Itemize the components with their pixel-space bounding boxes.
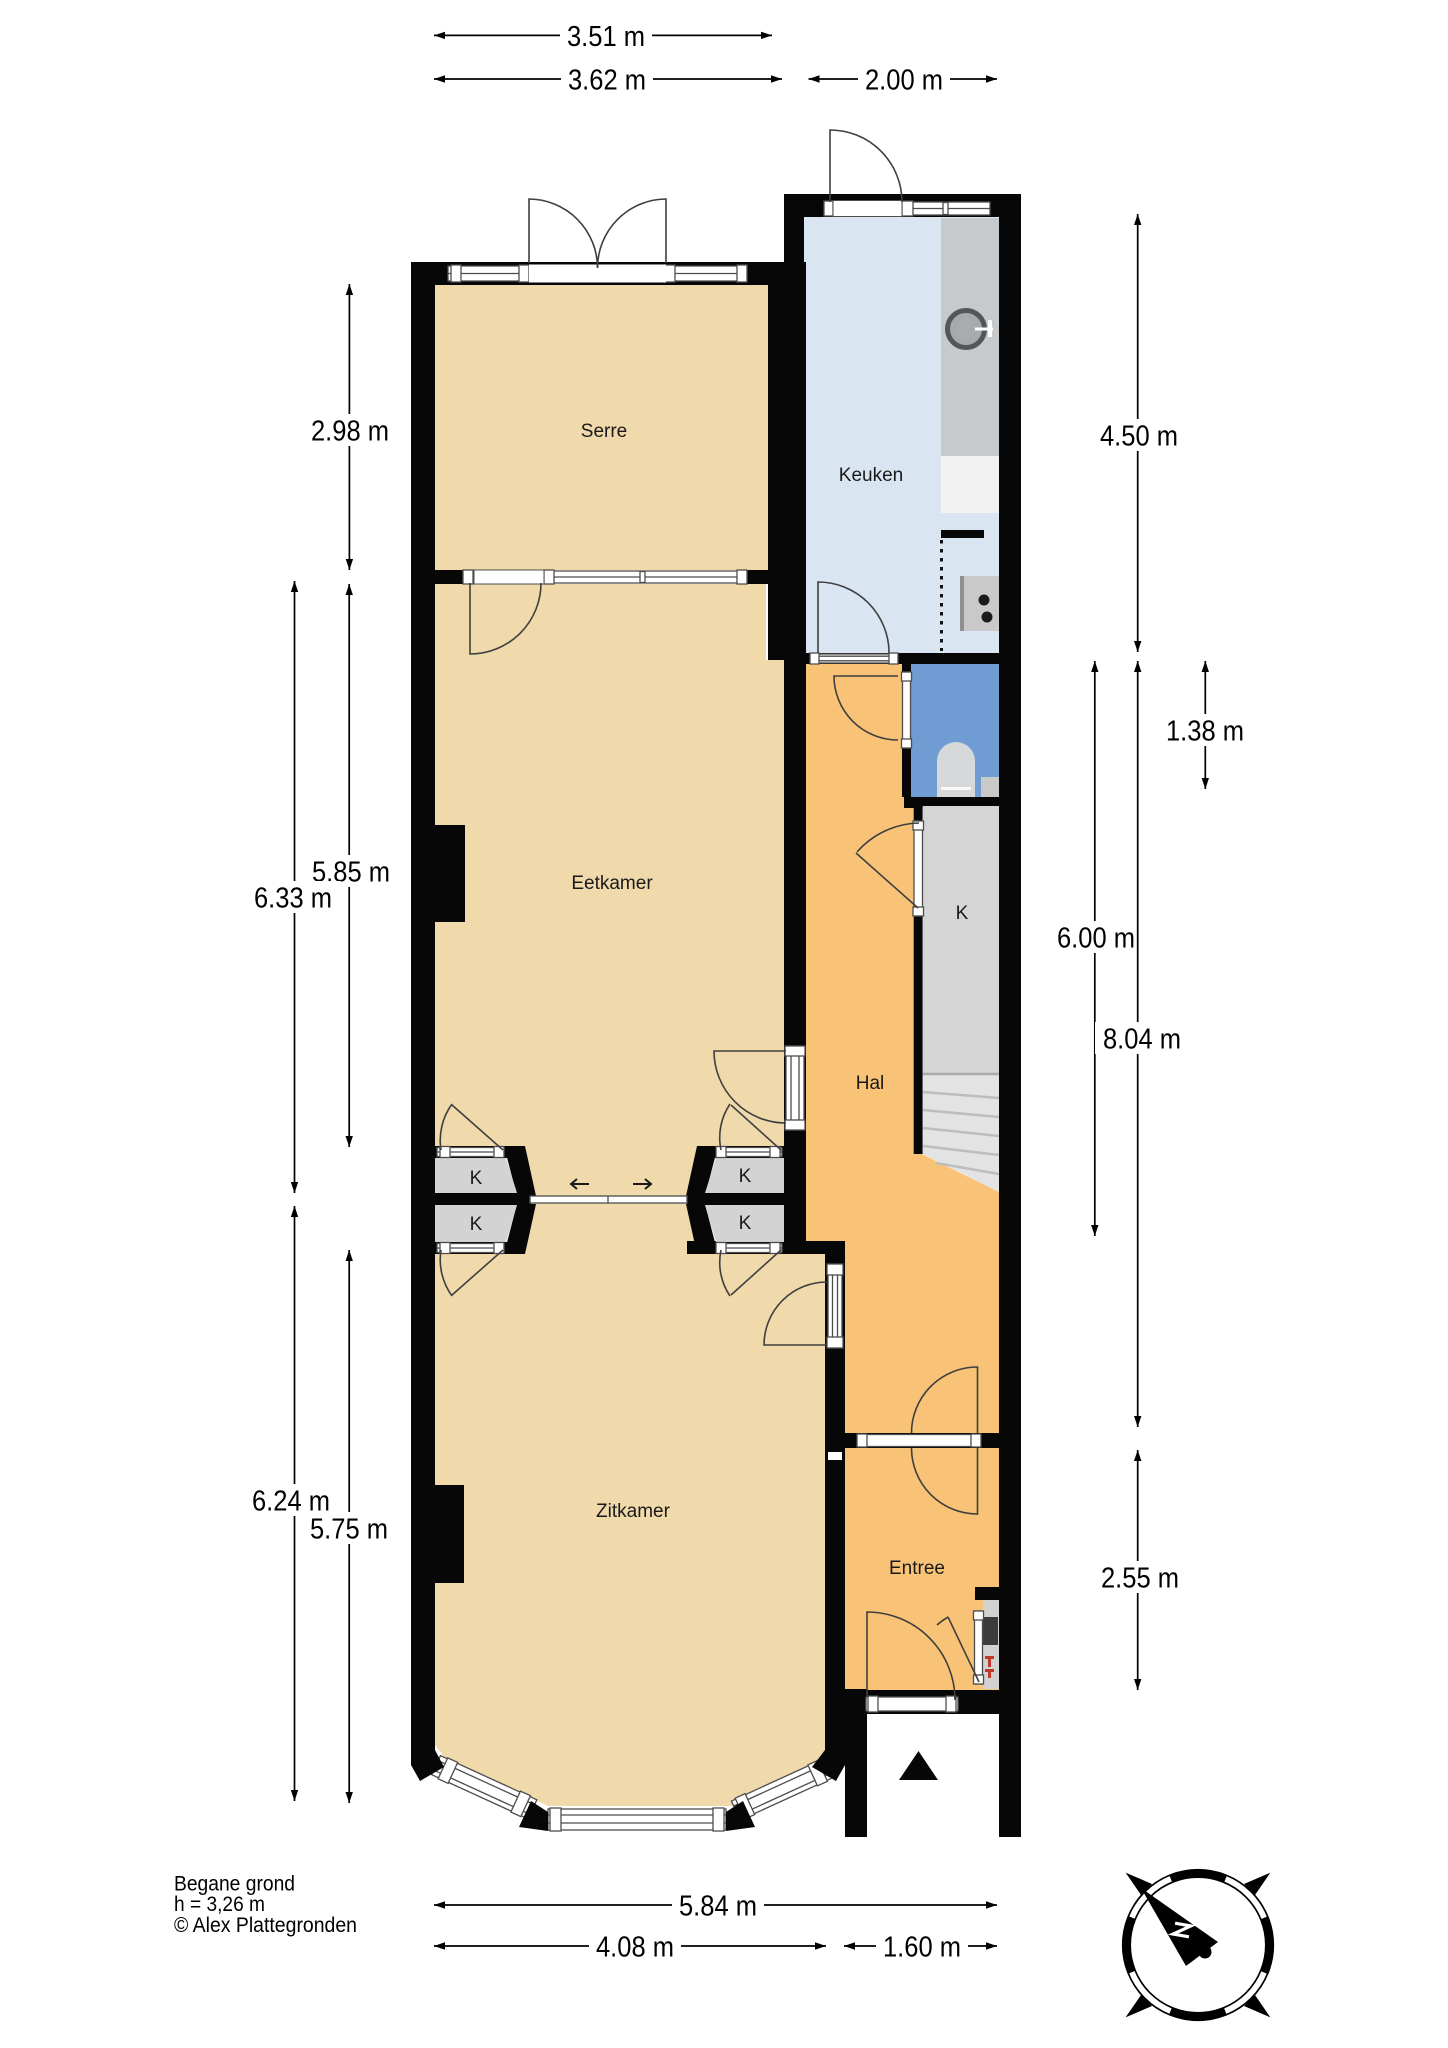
svg-text:6.33 m: 6.33 m xyxy=(254,883,332,915)
svg-text:2.55 m: 2.55 m xyxy=(1101,1563,1179,1595)
svg-text:4.08 m: 4.08 m xyxy=(596,1932,674,1964)
svg-text:1.60 m: 1.60 m xyxy=(883,1932,961,1964)
svg-text:K: K xyxy=(739,1166,752,1187)
svg-text:6.00 m: 6.00 m xyxy=(1057,923,1135,955)
svg-text:2.00 m: 2.00 m xyxy=(865,65,943,97)
svg-text:K: K xyxy=(470,1214,483,1235)
svg-text:5.84 m: 5.84 m xyxy=(679,1891,757,1923)
svg-text:5.75 m: 5.75 m xyxy=(310,1514,388,1546)
svg-text:Keuken: Keuken xyxy=(839,465,903,486)
svg-text:Serre: Serre xyxy=(581,421,627,442)
svg-text:© Alex Plattegronden: © Alex Plattegronden xyxy=(174,1914,357,1937)
svg-text:Entree: Entree xyxy=(889,1558,945,1579)
svg-text:K: K xyxy=(470,1168,483,1189)
svg-text:Zitkamer: Zitkamer xyxy=(596,1501,671,1522)
svg-text:K: K xyxy=(956,903,969,924)
svg-text:h = 3,26 m: h = 3,26 m xyxy=(174,1893,265,1916)
svg-text:2.98 m: 2.98 m xyxy=(311,416,389,448)
svg-text:4.50 m: 4.50 m xyxy=(1100,421,1178,453)
svg-text:1.38 m: 1.38 m xyxy=(1166,716,1244,748)
svg-text:3.62 m: 3.62 m xyxy=(568,65,646,97)
svg-text:3.51 m: 3.51 m xyxy=(567,21,645,53)
svg-text:Begane grond: Begane grond xyxy=(174,1873,295,1896)
svg-text:8.04 m: 8.04 m xyxy=(1103,1024,1181,1056)
svg-text:Eetkamer: Eetkamer xyxy=(571,873,653,894)
svg-text:K: K xyxy=(739,1213,752,1234)
svg-text:Hal: Hal xyxy=(856,1073,885,1094)
